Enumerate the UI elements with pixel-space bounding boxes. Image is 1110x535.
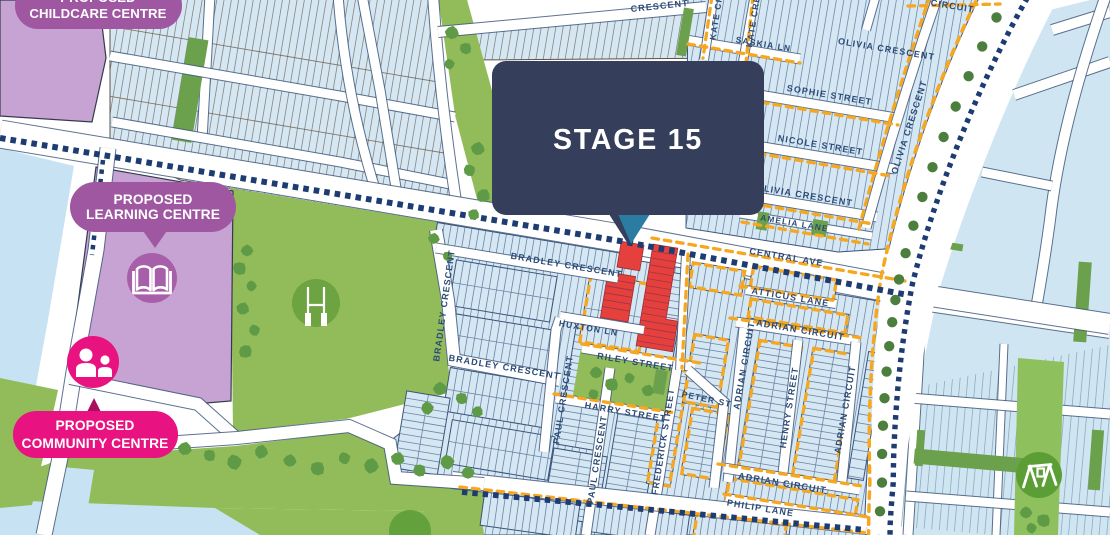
svg-text:PROPOSED: PROPOSED <box>55 418 134 433</box>
svg-text:COMMUNITY CENTRE: COMMUNITY CENTRE <box>22 436 169 451</box>
svg-text:PROPOSED: PROPOSED <box>113 192 192 207</box>
svg-text:LEARNING CENTRE: LEARNING CENTRE <box>86 207 220 222</box>
svg-text:STAGE 15: STAGE 15 <box>553 124 703 156</box>
svg-text:CHILDCARE CENTRE: CHILDCARE CENTRE <box>29 6 166 21</box>
svg-text:PROPOSED: PROPOSED <box>60 0 136 5</box>
